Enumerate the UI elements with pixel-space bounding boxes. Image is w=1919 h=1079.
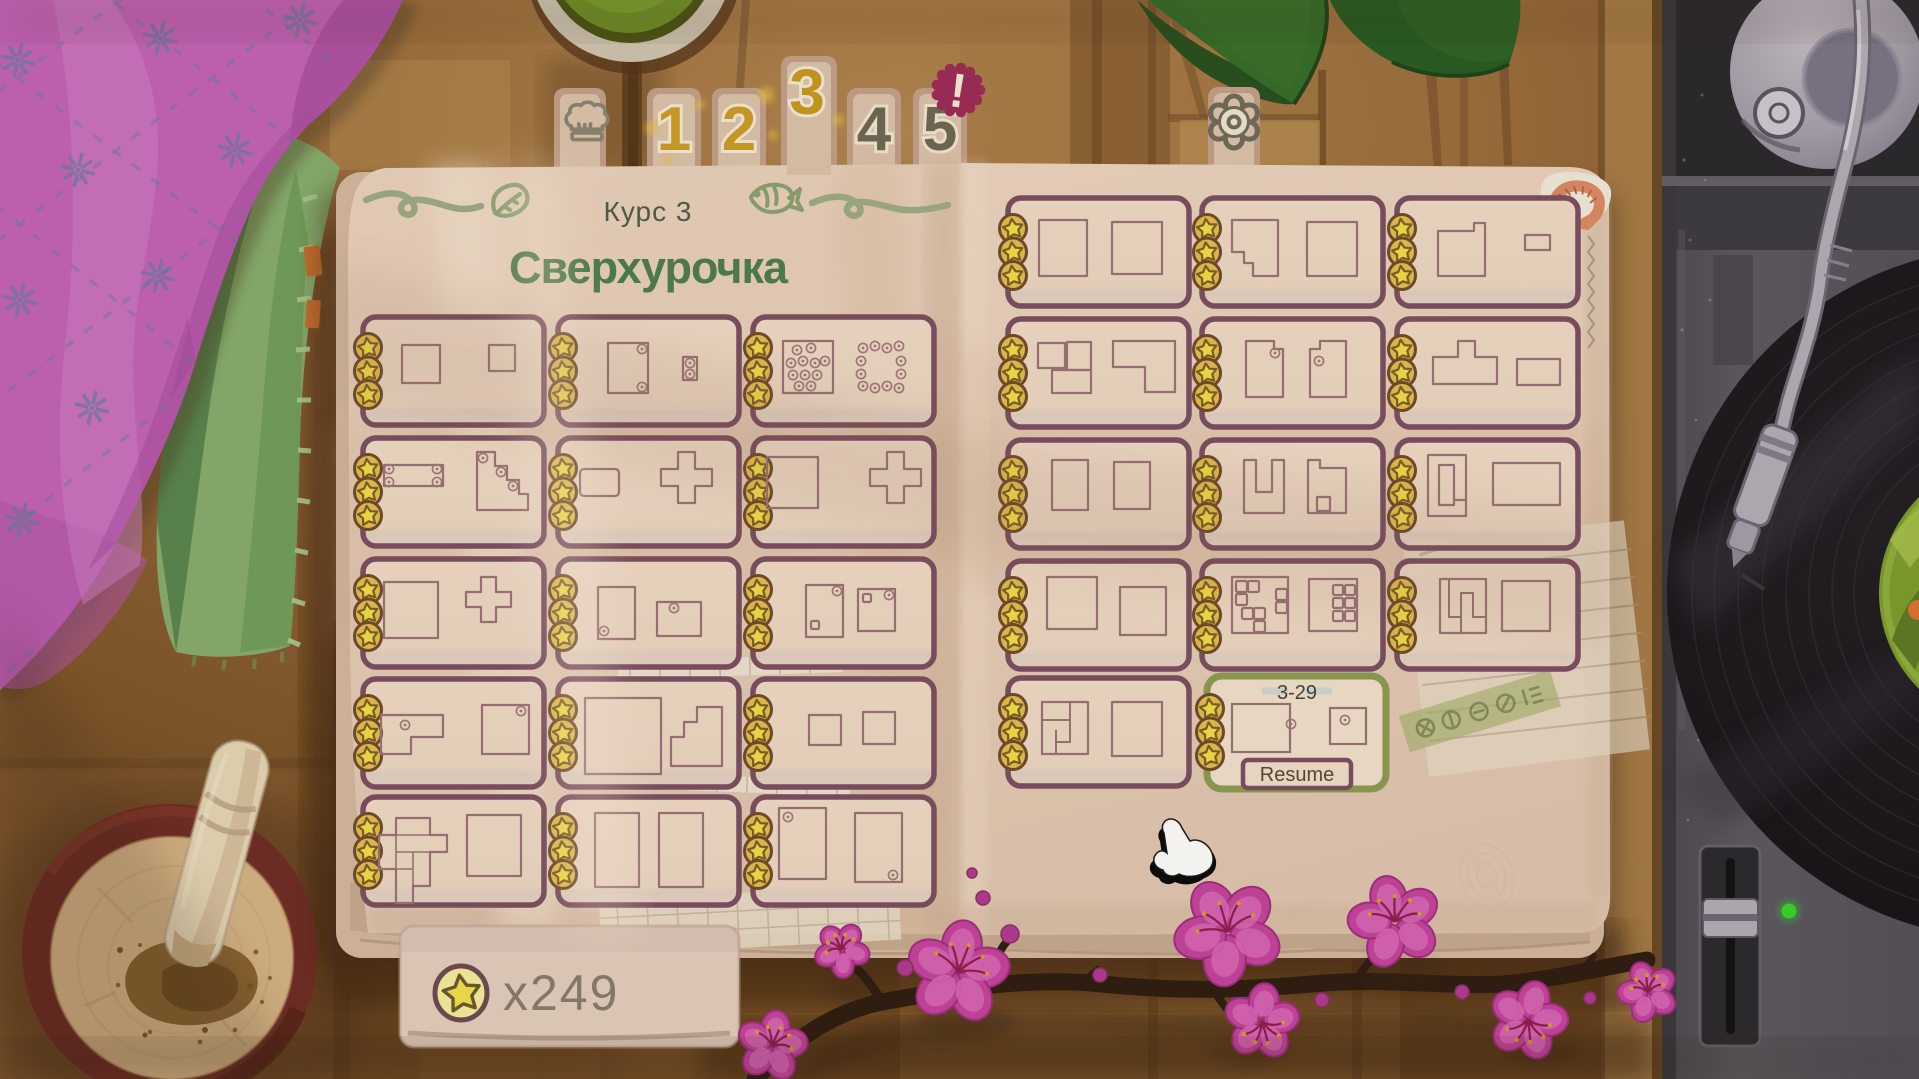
svg-text:1: 1	[657, 95, 691, 164]
svg-text:2: 2	[722, 95, 756, 164]
svg-text:4: 4	[857, 95, 892, 164]
svg-text:x249: x249	[503, 965, 619, 1021]
svg-text:Сверхурочка: Сверхурочка	[509, 242, 789, 293]
svg-text:3-29: 3-29	[1277, 682, 1317, 704]
svg-text:Resume: Resume	[1260, 764, 1334, 786]
svg-text:3: 3	[789, 56, 825, 128]
svg-text:Курс 3: Курс 3	[604, 196, 693, 227]
